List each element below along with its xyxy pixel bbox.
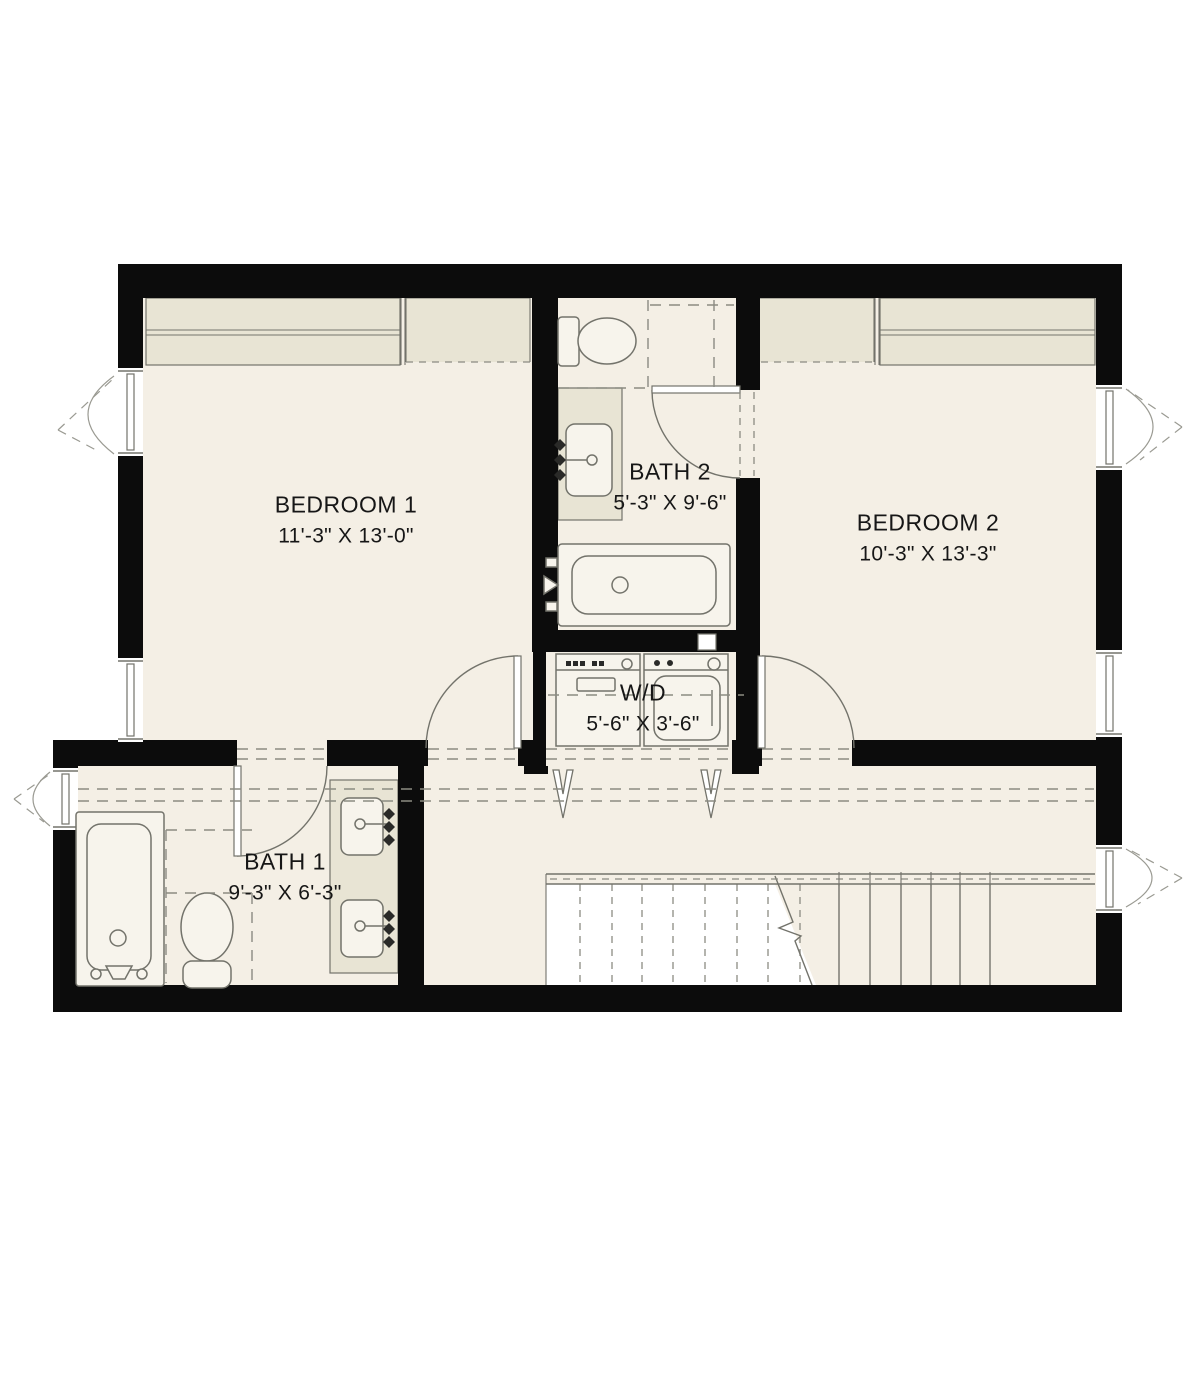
window-bedroom2-upper <box>1096 385 1122 470</box>
closet-bedroom1-left <box>146 298 400 365</box>
floor-plan-canvas: BEDROOM 1 11'-3" X 13'-0" BATH 2 5'-3" X… <box>0 0 1200 1400</box>
window-bedroom1-upper <box>118 368 143 456</box>
bathtub-bath2-icon <box>544 544 730 626</box>
stairwell-opening <box>546 884 816 985</box>
bathtub-bath1-icon <box>76 812 164 986</box>
closet-bedroom2-right <box>880 298 1095 365</box>
room-name: BATH 1 <box>228 851 341 874</box>
room-name: BEDROOM 1 <box>275 494 418 517</box>
room-dimensions: 5'-6" X 3'-6" <box>586 714 699 735</box>
room-name: BATH 2 <box>613 461 726 484</box>
toilet-bath2-icon <box>558 317 636 366</box>
room-label-laundry: W/D 5'-6" X 3'-6" <box>586 682 699 735</box>
room-dimensions: 10'-3" X 13'-3" <box>857 544 1000 565</box>
room-dimensions: 9'-3" X 6'-3" <box>228 883 341 904</box>
closet-bedroom2-left <box>748 298 874 362</box>
room-name: W/D <box>586 682 699 705</box>
room-label-bath-2: BATH 2 5'-3" X 9'-6" <box>613 461 726 514</box>
room-label-bath-1: BATH 1 9'-3" X 6'-3" <box>228 851 341 904</box>
window-hallway <box>1096 845 1122 913</box>
room-dimensions: 11'-3" X 13'-0" <box>275 526 418 547</box>
room-label-bedroom-2: BEDROOM 2 10'-3" X 13'-3" <box>857 512 1000 565</box>
casement-swing-icon <box>14 772 50 826</box>
window-bedroom2-lower <box>1096 650 1122 737</box>
closet-bedroom1-right <box>406 298 530 362</box>
window-bedroom1-lower <box>118 658 143 742</box>
window-bath1 <box>53 768 78 830</box>
casement-swing-icon <box>1126 849 1182 907</box>
casement-swing-icon <box>58 376 114 454</box>
toilet-bath1-icon <box>181 893 233 988</box>
casement-swing-icon <box>1126 389 1182 464</box>
room-dimensions: 5'-3" X 9'-6" <box>613 493 726 514</box>
room-name: BEDROOM 2 <box>857 512 1000 535</box>
wall-niche <box>698 634 716 650</box>
room-label-bedroom-1: BEDROOM 1 11'-3" X 13'-0" <box>275 494 418 547</box>
